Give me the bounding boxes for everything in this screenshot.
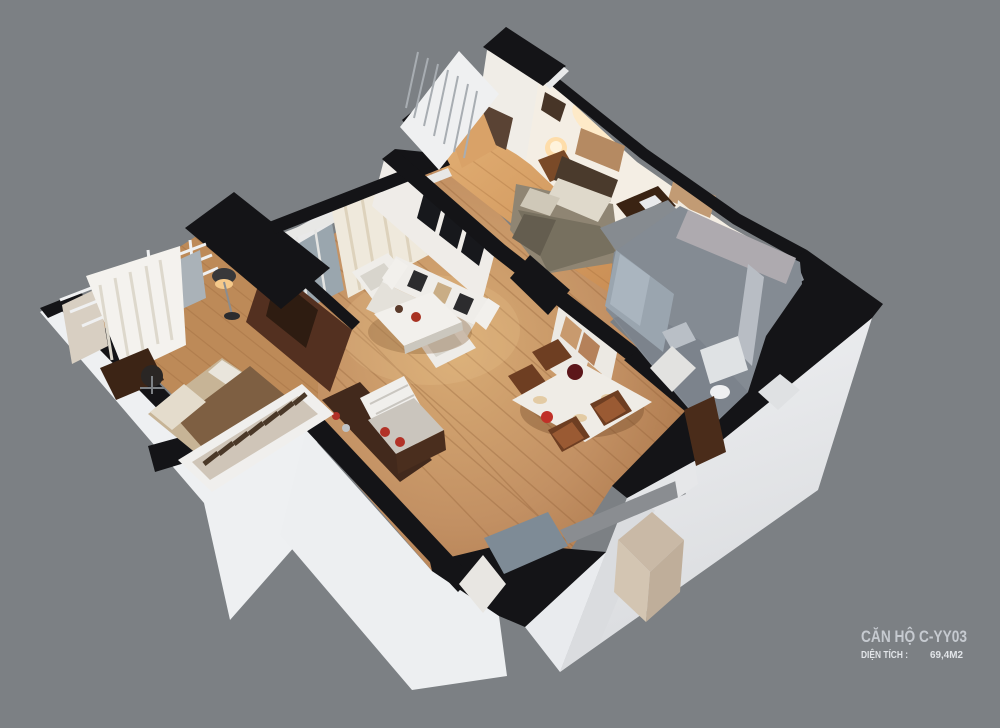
svg-text:DIỆN TÍCH :: DIỆN TÍCH : — [861, 648, 908, 661]
svg-text:CĂN HỘ C-YY03: CĂN HỘ C-YY03 — [861, 627, 967, 646]
svg-text:69,4M2: 69,4M2 — [930, 649, 963, 661]
